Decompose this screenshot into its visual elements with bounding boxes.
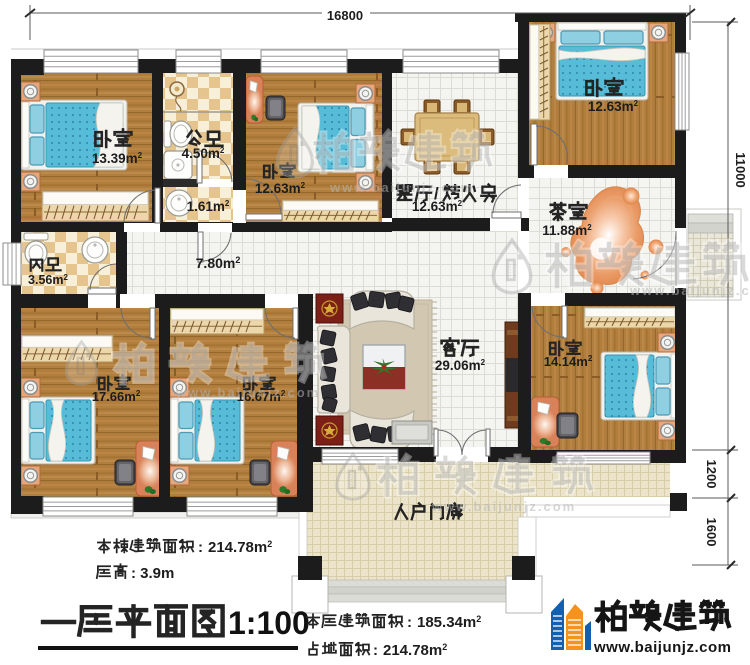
svg-text:: 3.9m: : 3.9m [131, 565, 174, 582]
svg-text:1.61m2: 1.61m2 [187, 199, 230, 214]
svg-text:11.88m2: 11.88m2 [542, 223, 592, 238]
svg-text:4.50m2: 4.50m2 [182, 146, 225, 161]
svg-text:29.06m2: 29.06m2 [435, 358, 486, 373]
svg-text:www.baijunjz.com: www.baijunjz.com [329, 180, 474, 195]
svg-text:16800: 16800 [327, 8, 363, 23]
svg-text::: : [198, 539, 203, 556]
svg-text:13.39m2: 13.39m2 [92, 151, 143, 166]
svg-text:12.63m2: 12.63m2 [412, 199, 463, 214]
svg-text:www.baijunjz.com: www.baijunjz.com [431, 499, 576, 514]
svg-text:3.56m2: 3.56m2 [28, 273, 68, 287]
svg-text::: : [407, 614, 412, 631]
svg-text:12.63m2: 12.63m2 [255, 181, 306, 196]
svg-text:12.63m2: 12.63m2 [588, 99, 639, 114]
svg-text::: : [373, 642, 378, 659]
svg-text:www.baijunjz.com: www.baijunjz.com [593, 639, 731, 656]
svg-text:www.baijunjz.com: www.baijunjz.com [175, 385, 320, 400]
svg-text:7.80m2: 7.80m2 [196, 255, 241, 271]
svg-text:1200: 1200 [704, 460, 719, 489]
svg-text:17.66m2: 17.66m2 [92, 389, 141, 404]
svg-text:1600: 1600 [704, 518, 719, 547]
svg-text:185.34m2: 185.34m2 [417, 614, 481, 631]
svg-text:214.78m2: 214.78m2 [208, 539, 272, 556]
svg-text:1:100: 1:100 [228, 605, 310, 641]
svg-text:11000: 11000 [733, 152, 748, 187]
svg-text:14.14m2: 14.14m2 [544, 354, 593, 369]
svg-text:www.baijunjz.com: www.baijunjz.com [629, 283, 750, 298]
svg-text:214.78m2: 214.78m2 [383, 642, 447, 659]
